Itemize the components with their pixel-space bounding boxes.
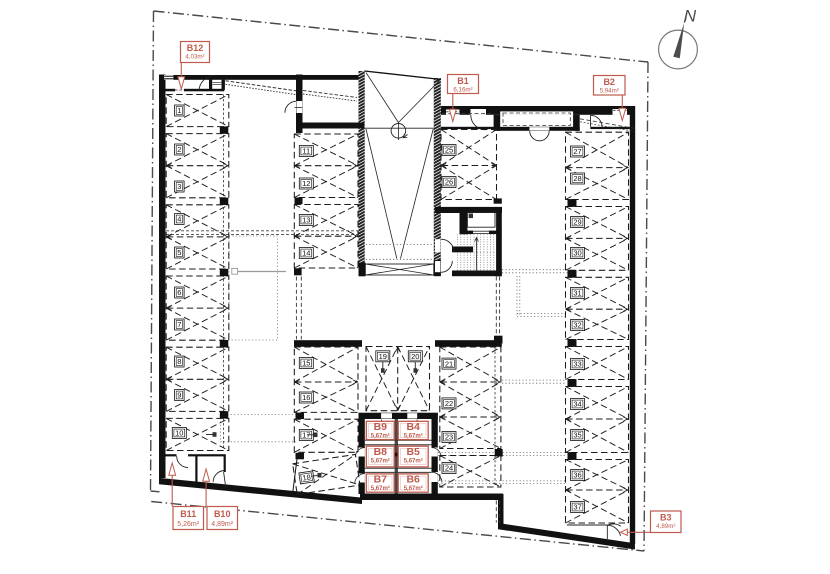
svg-text:18: 18	[302, 473, 312, 483]
svg-text:4,89m²: 4,89m²	[211, 521, 233, 528]
svg-text:30: 30	[573, 249, 581, 258]
svg-text:31: 31	[573, 289, 581, 298]
svg-text:13: 13	[302, 216, 310, 225]
svg-text:9: 9	[177, 391, 181, 400]
svg-text:5,94m²: 5,94m²	[600, 88, 619, 95]
svg-text:4,03m²: 4,03m²	[185, 54, 204, 61]
svg-text:6: 6	[177, 288, 181, 297]
svg-text:B2: B2	[603, 77, 615, 87]
svg-text:6,16m²: 6,16m²	[453, 87, 472, 94]
svg-text:20: 20	[411, 352, 419, 361]
svg-text:25: 25	[445, 146, 453, 155]
svg-text:N: N	[684, 7, 697, 26]
svg-text:37: 37	[573, 503, 581, 512]
svg-text:B7: B7	[374, 474, 388, 486]
svg-text:23: 23	[445, 433, 453, 442]
svg-text:B9: B9	[374, 421, 388, 433]
svg-text:B6: B6	[406, 474, 420, 486]
svg-text:35: 35	[573, 431, 581, 440]
svg-text:36: 36	[573, 471, 581, 480]
svg-text:29: 29	[573, 218, 581, 227]
svg-text:12: 12	[302, 179, 310, 188]
svg-text:10: 10	[175, 429, 183, 438]
svg-text:B1: B1	[457, 76, 469, 86]
svg-text:24: 24	[445, 464, 453, 473]
svg-text:22: 22	[445, 399, 453, 408]
svg-text:B12: B12	[187, 43, 204, 53]
svg-text:14: 14	[302, 249, 310, 258]
svg-text:B5: B5	[406, 446, 420, 458]
svg-text:2: 2	[177, 145, 181, 154]
svg-text:B11: B11	[180, 509, 196, 519]
svg-text:5,67m²: 5,67m²	[371, 485, 390, 492]
svg-text:15: 15	[302, 359, 310, 368]
svg-text:5: 5	[177, 248, 181, 257]
svg-text:B8: B8	[374, 446, 388, 458]
svg-text:5,67m²: 5,67m²	[404, 485, 423, 492]
svg-text:16: 16	[302, 393, 310, 402]
svg-text:5,26m²: 5,26m²	[177, 521, 199, 528]
svg-text:26: 26	[445, 178, 453, 187]
svg-text:3: 3	[177, 182, 181, 191]
svg-text:5,67m²: 5,67m²	[404, 457, 423, 464]
svg-text:32: 32	[573, 321, 581, 330]
svg-text:34: 34	[573, 400, 581, 409]
svg-text:19: 19	[379, 352, 387, 361]
svg-text:B10: B10	[214, 509, 231, 519]
svg-text:4,89m²: 4,89m²	[656, 523, 675, 530]
svg-text:33: 33	[573, 360, 581, 369]
svg-text:27: 27	[573, 147, 581, 156]
svg-text:8: 8	[177, 357, 181, 366]
svg-text:5,67m²: 5,67m²	[371, 432, 390, 439]
svg-text:1: 1	[177, 106, 181, 115]
svg-text:5,67m²: 5,67m²	[404, 432, 423, 439]
svg-text:4: 4	[177, 215, 181, 224]
svg-text:21: 21	[445, 359, 453, 368]
svg-text:B3: B3	[660, 512, 672, 522]
svg-text:7: 7	[177, 320, 181, 329]
svg-text:5,67m²: 5,67m²	[371, 457, 390, 464]
svg-text:11: 11	[302, 147, 310, 156]
svg-text:28: 28	[573, 174, 581, 183]
svg-text:B4: B4	[406, 421, 420, 433]
